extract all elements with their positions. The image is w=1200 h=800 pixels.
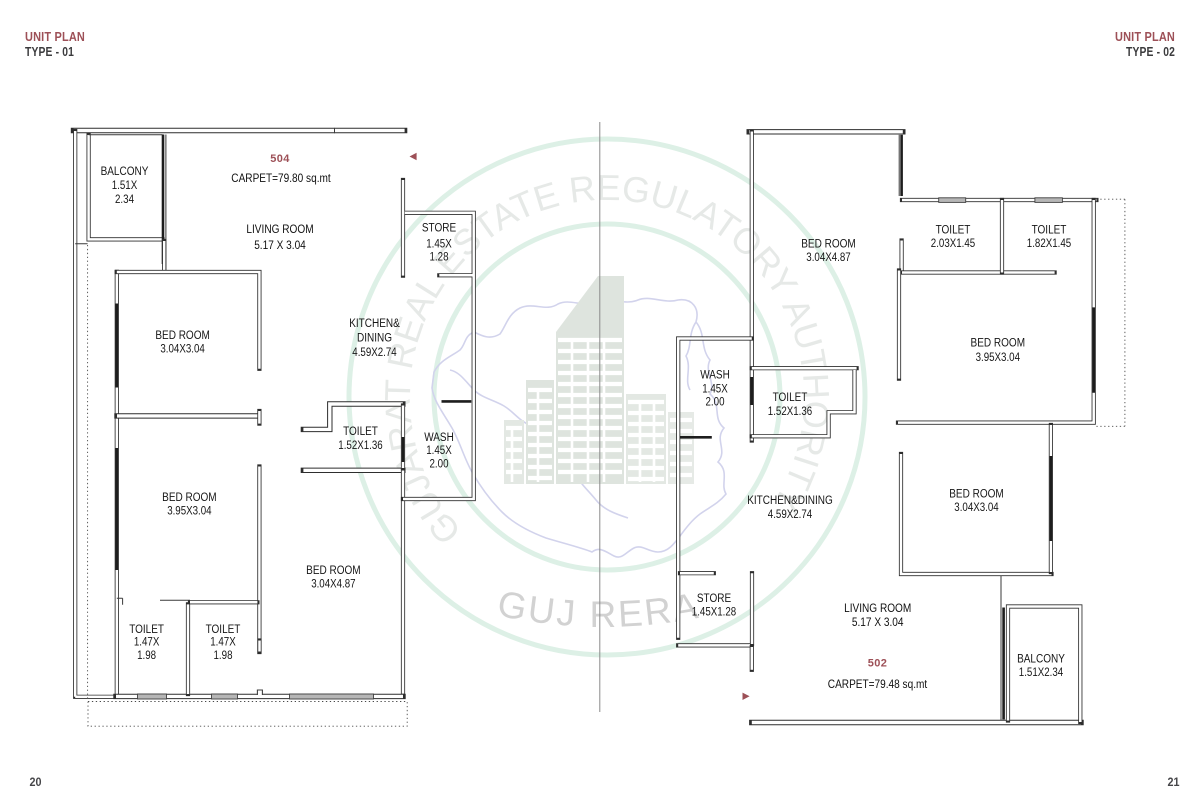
svg-text:WASH: WASH [700,368,730,382]
svg-text:504: 504 [270,153,290,165]
svg-text:1.98: 1.98 [137,649,156,662]
svg-text:TYPE - 01: TYPE - 01 [25,44,74,59]
svg-text:3.04X4.87: 3.04X4.87 [806,251,850,264]
svg-text:1.98: 1.98 [214,649,233,662]
svg-text:BALCONY: BALCONY [1017,652,1065,666]
svg-text:2.03X1.45: 2.03X1.45 [931,237,975,250]
svg-text:2.00: 2.00 [430,458,449,471]
svg-text:BED ROOM: BED ROOM [155,328,210,342]
svg-text:BED ROOM: BED ROOM [162,490,217,504]
svg-text:STORE: STORE [422,221,456,235]
svg-text:20: 20 [30,775,42,789]
svg-text:LIVING ROOM: LIVING ROOM [246,222,313,236]
svg-text:WASH: WASH [424,430,454,444]
svg-text:UNIT PLAN: UNIT PLAN [1115,29,1175,44]
svg-text:3.04X3.04: 3.04X3.04 [954,501,999,514]
svg-text:STORE: STORE [697,591,731,605]
svg-text:4.59X2.74: 4.59X2.74 [352,346,397,359]
svg-text:BED ROOM: BED ROOM [306,563,361,577]
svg-text:CARPET=79.80 sq.mt: CARPET=79.80 sq.mt [231,171,331,185]
svg-text:TOILET: TOILET [343,424,378,438]
svg-text:DINING: DINING [357,331,392,345]
svg-text:BED ROOM: BED ROOM [949,487,1004,501]
svg-text:5.17 X 3.04: 5.17 X 3.04 [254,238,306,252]
svg-text:1.52X1.36: 1.52X1.36 [338,439,382,452]
svg-text:1.45X: 1.45X [426,238,452,251]
svg-text:BED ROOM: BED ROOM [971,336,1026,350]
svg-text:5.17 X 3.04: 5.17 X 3.04 [852,615,904,629]
svg-text:1.45X1.28: 1.45X1.28 [692,606,736,619]
svg-text:TOILET: TOILET [129,622,164,636]
svg-text:1.45X: 1.45X [426,444,452,457]
svg-text:BALCONY: BALCONY [101,164,149,178]
svg-text:1.47X: 1.47X [134,636,160,649]
svg-text:TOILET: TOILET [773,390,808,404]
svg-text:KITCHEN&DINING: KITCHEN&DINING [747,493,833,507]
svg-text:1.45X: 1.45X [702,383,728,396]
svg-text:LIVING ROOM: LIVING ROOM [844,601,911,615]
svg-text:1.82X1.45: 1.82X1.45 [1027,237,1071,250]
svg-text:2.34: 2.34 [115,193,134,206]
svg-text:1.52X1.36: 1.52X1.36 [768,405,812,418]
svg-text:3.95X3.04: 3.95X3.04 [976,351,1021,364]
svg-text:TOILET: TOILET [206,622,241,636]
svg-text:TOILET: TOILET [936,223,971,237]
svg-text:BED ROOM: BED ROOM [801,237,856,251]
svg-text:1.47X: 1.47X [210,636,236,649]
svg-text:4.59X2.74: 4.59X2.74 [768,508,813,521]
svg-text:1.51X2.34: 1.51X2.34 [1019,666,1064,679]
svg-text:1.51X: 1.51X [112,179,138,192]
svg-text:TOILET: TOILET [1032,223,1067,237]
svg-text:2.00: 2.00 [706,396,725,409]
svg-text:3.04X3.04: 3.04X3.04 [160,343,205,356]
svg-text:3.04X4.87: 3.04X4.87 [311,578,355,591]
svg-text:1.28: 1.28 [430,251,449,264]
svg-text:CARPET=79.48 sq.mt: CARPET=79.48 sq.mt [828,677,928,691]
svg-text:502: 502 [868,658,888,670]
svg-text:KITCHEN&: KITCHEN& [349,316,400,330]
svg-text:21: 21 [1168,775,1180,789]
svg-text:3.95X3.04: 3.95X3.04 [167,505,212,518]
svg-text:UNIT PLAN: UNIT PLAN [25,29,85,44]
svg-text:TYPE - 02: TYPE - 02 [1126,44,1175,59]
